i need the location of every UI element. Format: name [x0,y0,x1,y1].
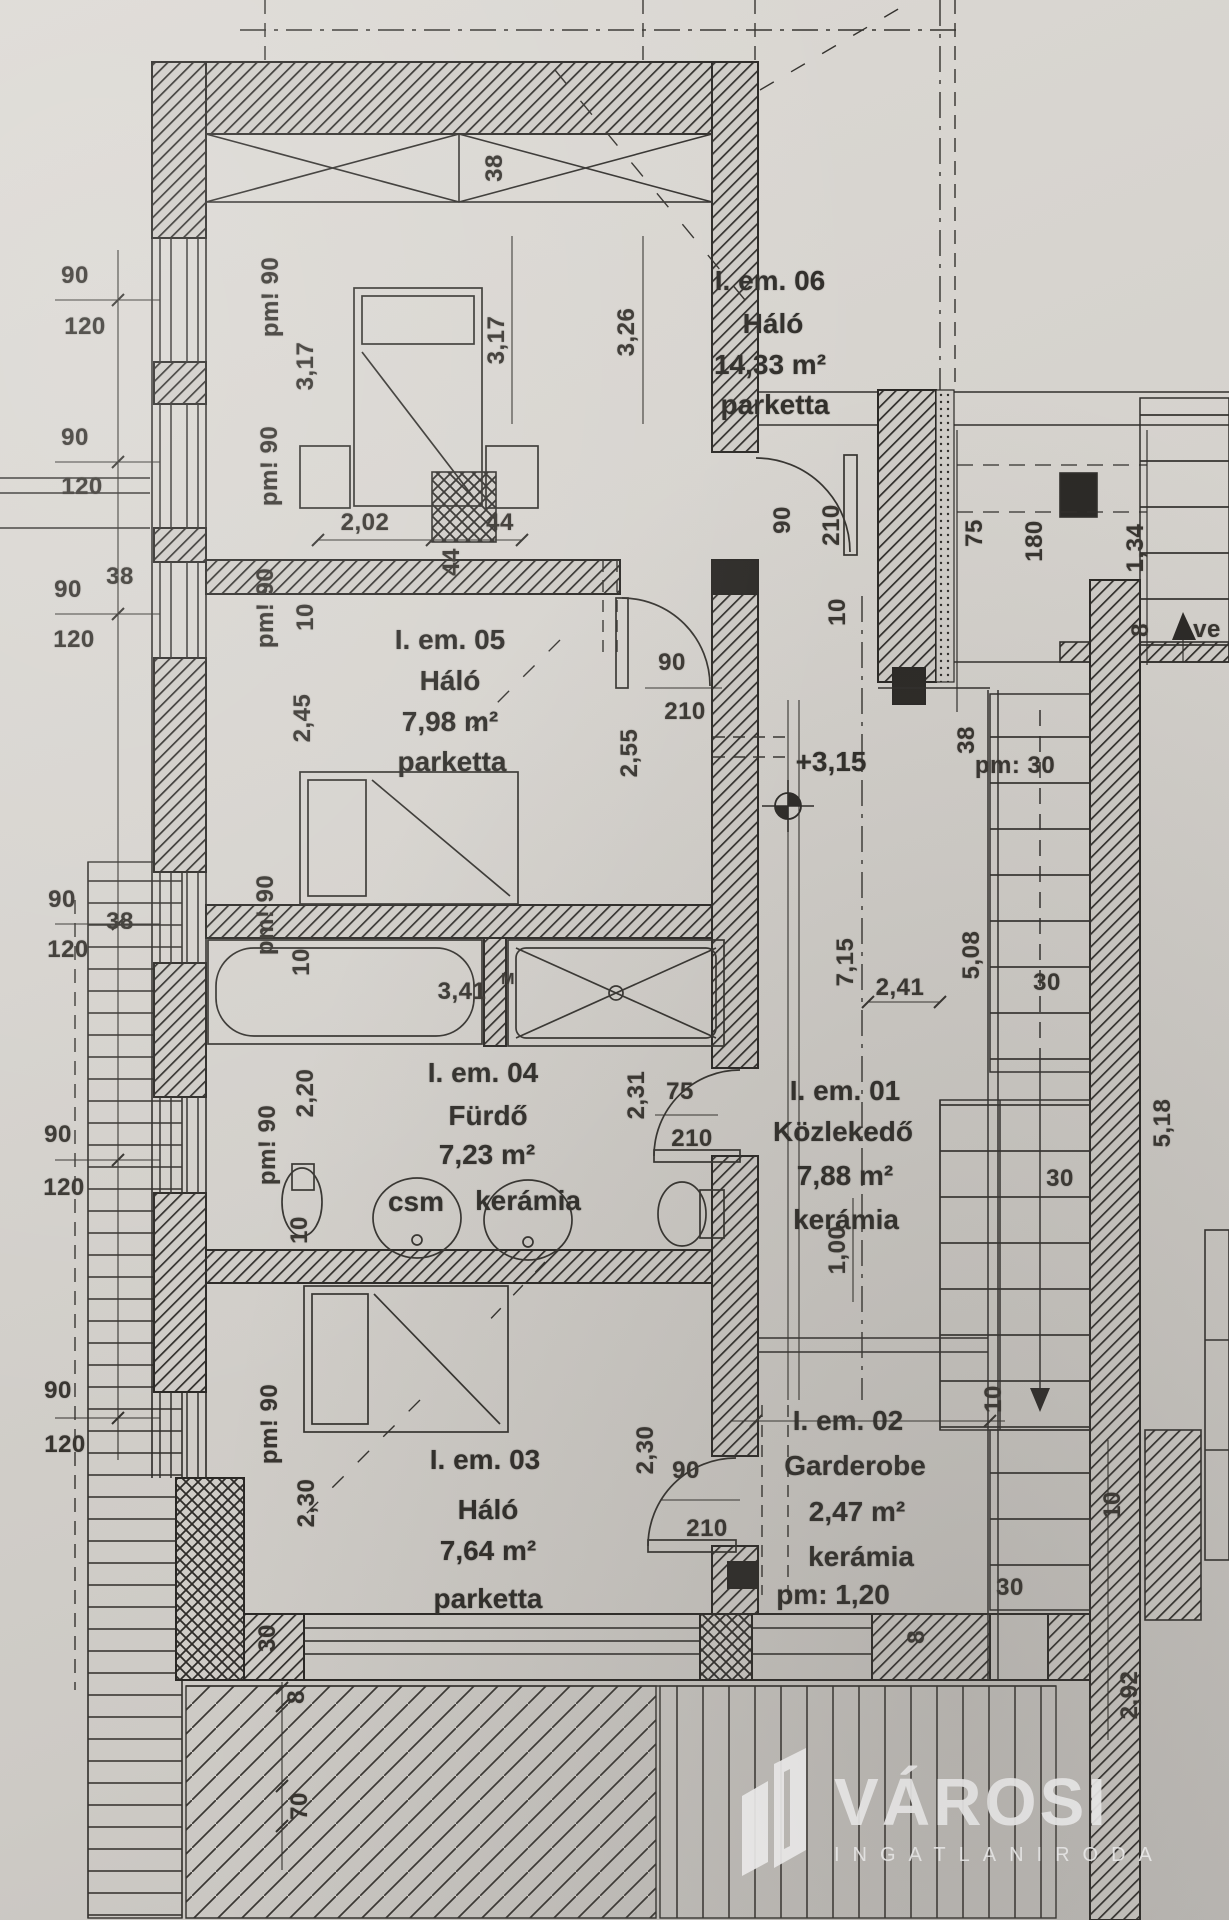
dimension-label: 2,20 [292,1069,320,1118]
dimension-label: 180 [1021,520,1049,562]
room-area: 7,23 m² [439,1139,536,1171]
dimension-label: 38 [106,563,134,591]
dimension-label: 120 [44,1431,86,1459]
dimension-label: 8 [1127,623,1155,637]
dimension-label: 210 [671,1125,713,1153]
dimension-label: pm: 30 [975,752,1055,780]
dimension-label: M [501,971,515,989]
room-id: I. em. 03 [430,1444,541,1476]
room-id: I. em. 01 [790,1075,901,1107]
dimension-label: 8 [283,1690,311,1704]
dimension-label: 90 [658,649,686,677]
dimension-label: 2,31 [623,1071,651,1120]
dimension-label: 2,30 [632,1426,660,1475]
dimension-label: 90 [672,1457,700,1485]
dimension-label: 10 [980,1385,1008,1413]
dimension-label: 90 [54,576,82,604]
dimension-label: 70 [286,1792,314,1820]
dimension-label: 120 [61,473,103,501]
room-name: Közlekedő [773,1116,913,1148]
dimension-label: 2,55 [616,729,644,778]
room-floor: parketta [721,389,830,421]
dimension-label: 30 [1033,969,1061,997]
dimension-label: 3,41 [438,978,487,1006]
room-area: 2,47 m² [809,1496,906,1528]
room-note: pm: 1,20 [776,1579,890,1611]
dimension-label: 3,17 [483,316,511,365]
dimension-label: 210 [686,1515,728,1543]
level-mark: +3,15 [796,746,867,778]
dimension-label: 44 [486,509,514,537]
dimension-label: 90 [44,1121,72,1149]
dimension-label: 210 [664,698,706,726]
dimension-label: pm! 90 [257,257,285,337]
dimension-label: 3,17 [292,342,320,391]
room-floor: kerámia [808,1541,914,1573]
dimension-label: pm! 90 [256,426,284,506]
dimension-label: 75 [666,1078,694,1106]
dimension-label: 30 [996,1574,1024,1602]
dimension-label: 2,02 [341,509,390,537]
room-floor: parketta [398,746,507,778]
dimension-label: 10 [286,1216,314,1244]
dimension-label: 120 [53,626,95,654]
dimension-label: 5,18 [1149,1099,1177,1148]
dimension-label: 10 [288,948,316,976]
room-area: 7,98 m² [402,706,499,738]
dimension-label: 2,41 [876,974,925,1002]
dimension-label: 75 [961,519,989,547]
dimension-label: 7,15 [832,938,860,987]
dimension-label: 38 [953,726,981,754]
dimension-label: pm! 90 [254,1105,282,1185]
room-id: I. em. 06 [715,265,826,297]
room-name: Háló [458,1494,519,1526]
room-name: Garderobe [784,1450,926,1482]
room-name: Háló [743,308,804,340]
room-name: Fürdő [448,1100,527,1132]
dimension-label: 30 [254,1624,282,1652]
dimension-label: 10 [824,598,852,626]
dimension-label: 120 [47,936,89,964]
dimension-label: 90 [48,886,76,914]
dimension-label: 2,45 [289,694,317,743]
dimension-label: 44 [438,548,466,576]
watermark-tagline: INGATLANIRODA [834,1844,1165,1867]
watermark-brand: VÁROSI [834,1769,1165,1836]
watermark: VÁROSI INGATLANIRODA [738,1748,1165,1888]
room-area: 14,33 m² [714,349,826,381]
dimension-label: 90 [61,262,89,290]
dimension-label: ve [1193,616,1221,644]
dimension-label: 120 [64,313,106,341]
dimension-label: pm! 90 [252,875,280,955]
floorplan-sheet: I. em. 06 Háló 14,33 m² parketta I. em. … [0,0,1229,1920]
labels-layer: I. em. 06 Háló 14,33 m² parketta I. em. … [0,0,1229,1920]
dimension-label: 90 [769,506,797,534]
dimension-label: 2,30 [293,1479,321,1528]
dimension-label: 1,00 [824,1226,852,1275]
dimension-label: pm! 90 [256,1384,284,1464]
dimension-label: pm! 90 [252,568,280,648]
dimension-label: 10 [292,603,320,631]
room-floor: parketta [434,1583,543,1615]
dimension-label: 8 [903,1630,931,1644]
room-id: I. em. 05 [395,624,506,656]
dimension-label: 10 [1099,1491,1127,1519]
room-id: I. em. 02 [793,1405,904,1437]
varosi-logo-icon [738,1748,810,1888]
dimension-label: 38 [481,154,509,182]
dimension-label: 1,34 [1122,524,1150,573]
room-name: Háló [420,665,481,697]
dimension-label: 38 [106,908,134,936]
dimension-label: 90 [44,1377,72,1405]
dimension-label: 30 [1046,1165,1074,1193]
dimension-label: 210 [818,504,846,546]
dimension-label: 3,26 [613,308,641,357]
dimension-label: 120 [43,1174,85,1202]
room-floor: kerámia [475,1185,581,1217]
room-area: 7,88 m² [797,1160,894,1192]
room-id: I. em. 04 [428,1057,539,1089]
dimension-label: 90 [61,424,89,452]
washing-machine-label: csm [388,1186,444,1218]
room-area: 7,64 m² [440,1535,537,1567]
dimension-label: 5,08 [958,931,986,980]
dimension-label: 2,92 [1116,1671,1144,1720]
